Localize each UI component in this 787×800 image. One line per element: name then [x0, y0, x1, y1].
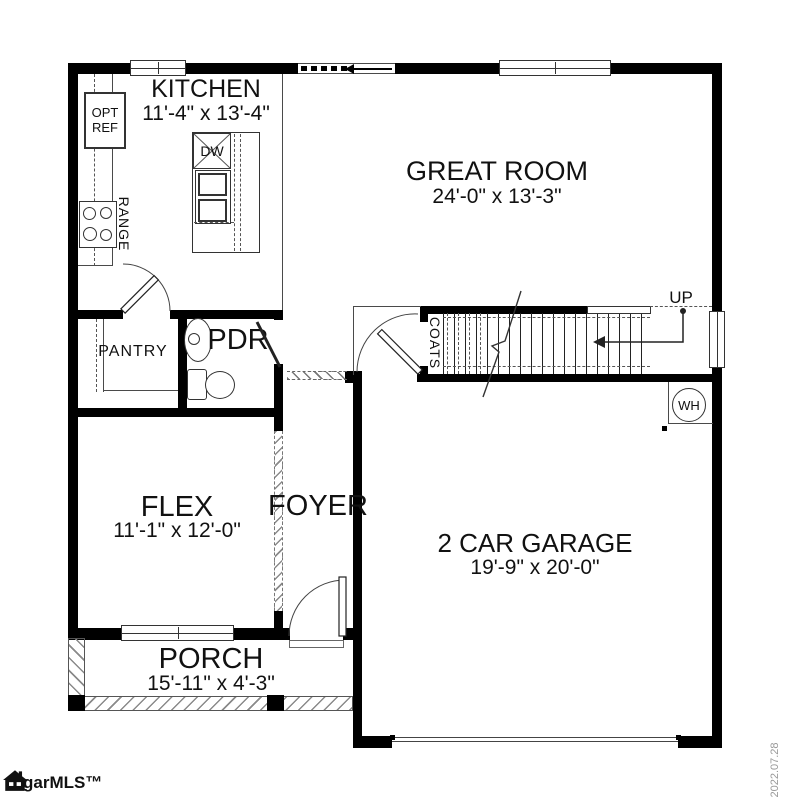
island-dashed-line [240, 134, 241, 251]
kitchen-window [130, 60, 186, 76]
wh-nook-wall [668, 423, 713, 424]
front-door-stoop [289, 640, 344, 648]
room-name-garage: 2 CAR GARAGE [405, 530, 665, 556]
porch-post [267, 695, 284, 711]
room-dims-flex: 11'-1" x 12'-0" [97, 520, 257, 541]
island-dashed-line [234, 134, 235, 251]
stair-treads [443, 313, 651, 374]
room-dims-kitchen: 11'-4" x 13'-4" [106, 103, 306, 124]
room-name-flex: FLEX [97, 493, 257, 522]
pantry-shelf-line [103, 390, 178, 391]
stair-tread-dashed [480, 313, 481, 374]
stair-stringer-dashed [443, 317, 650, 318]
garage-entry-door-swing-arc [357, 314, 418, 372]
front-door-swing-arc [289, 580, 345, 636]
garage-bottom-wall-segment [353, 736, 392, 748]
toilet-tank [187, 369, 207, 400]
range-cooktop [79, 201, 117, 248]
top-wall-segment [185, 63, 298, 74]
sliding-door-panel-line [354, 68, 392, 70]
top-wall-segment [395, 63, 501, 74]
room-dims-garage: 19'-9" x 20'-0" [405, 557, 665, 578]
sliding-door-arrow-icon [345, 64, 354, 74]
island-sink-bowl [198, 199, 227, 222]
flex-foyer-divider-stub-top [274, 417, 283, 431]
stairs-bottom-wall [417, 374, 712, 382]
dishwasher-label: DW [200, 143, 223, 159]
garage-door-end [676, 735, 681, 740]
floor-plan: OPT REF RANGE DW COATS UP WH [0, 0, 787, 800]
counter-end-cap [78, 265, 113, 266]
garage-door [392, 737, 678, 742]
porch-post [68, 695, 85, 711]
right-wall-lower [712, 367, 722, 748]
pdr-right-wall-stub [274, 310, 283, 320]
great-room-window [499, 60, 611, 76]
island-dashed-line [194, 222, 234, 223]
garage-left-wall [353, 375, 362, 748]
burner-icon [83, 227, 97, 241]
range-label: RANGE [117, 192, 131, 256]
pdr-top-wall [170, 310, 283, 319]
kitchen-door-swing-arc [123, 264, 170, 311]
up-arrow-start-dot [680, 308, 686, 314]
island-sink-bowl [198, 173, 227, 196]
mls-logo-text: garMLS™ [23, 774, 102, 791]
stair-upper-run-outline [587, 306, 651, 314]
toilet-bowl [205, 371, 235, 399]
room-name-pantry: PANTRY [83, 344, 183, 360]
up-label: UP [666, 289, 696, 306]
wh-marker-dot [662, 426, 667, 431]
water-heater-label: WH [678, 398, 700, 413]
pantry-top-wall-segment [68, 310, 123, 319]
stair-tread-dashed [469, 313, 470, 374]
room-name-porch: PORCH [131, 645, 291, 674]
stair-stringer-dashed [443, 366, 650, 367]
burner-icon [100, 207, 112, 219]
stair-landing-window [709, 311, 725, 368]
vestibule-outline-left [353, 306, 354, 375]
room-name-kitchen: KITCHEN [106, 77, 306, 102]
mls-logo: garMLS™ [2, 768, 107, 792]
room-name-great-room: GREAT ROOM [377, 158, 617, 185]
flex-top-wall [68, 408, 283, 417]
garage-door-end [390, 735, 395, 740]
wh-nook-wall [668, 382, 669, 424]
top-wall-segment [610, 63, 722, 74]
flex-foyer-divider-stub-bottom [274, 611, 283, 638]
water-heater: WH [672, 388, 706, 422]
porch-column-hatch [68, 638, 85, 698]
foyer-cased-opening [287, 371, 347, 380]
garage-entry-door-leaf [378, 330, 423, 375]
pdr-sink-drain-icon [188, 333, 200, 345]
foyer-bottom-wall-stub [343, 628, 362, 640]
plan-date: 2022.07.28 [770, 735, 782, 800]
right-wall-upper [712, 63, 722, 313]
burner-icon [100, 229, 112, 241]
garage-bottom-wall-segment [678, 736, 722, 748]
porch-edge-hatch [68, 696, 353, 711]
vestibule-outline-top [353, 306, 421, 307]
room-dims-great-room: 24'-0" x 13'-3" [377, 186, 617, 207]
burner-icon [83, 207, 96, 220]
coats-label: COATS [428, 311, 442, 375]
kitchen-door-leaf [121, 276, 158, 313]
stair-tread-dashed [458, 313, 459, 374]
dishwasher: DW [193, 133, 231, 169]
room-name-foyer: FOYER [248, 492, 388, 521]
left-wall [68, 63, 78, 640]
flex-window [121, 625, 234, 641]
stair-tread-dashed [447, 313, 448, 374]
pdr-right-wall [274, 364, 283, 408]
room-dims-porch: 15'-11" x 4'-3" [131, 673, 291, 694]
room-name-pdr: PDR [207, 326, 269, 355]
